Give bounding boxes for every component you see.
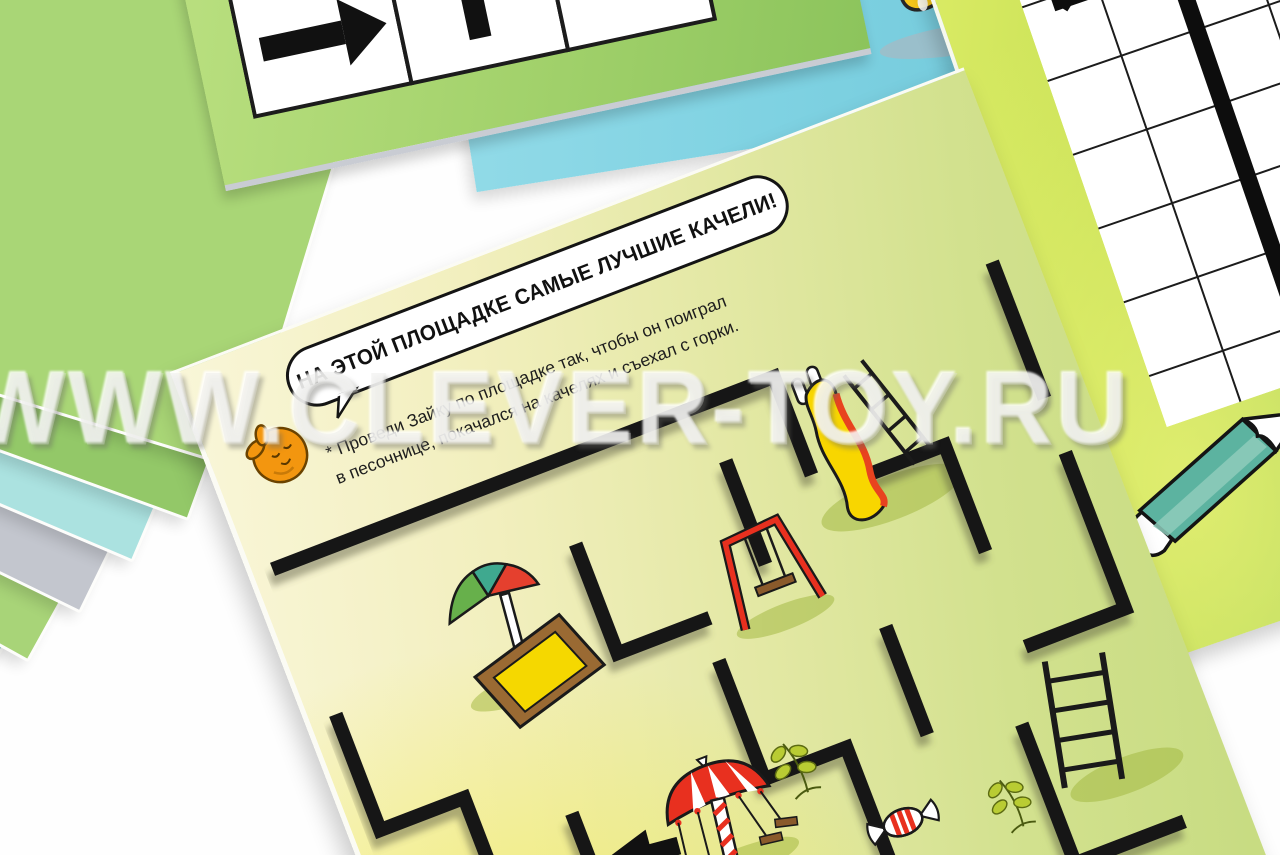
entry-arrow-icon — [588, 822, 685, 855]
bunny-icon — [235, 410, 320, 495]
plant-illustration — [981, 771, 1040, 837]
speech-bubble-tail — [328, 386, 368, 421]
photo-scene: НА ЭТОЙ ПЛОЩАДКЕ САМЫЕ ЛУЧШИЕ КАЧЕЛИ! * … — [0, 0, 1280, 855]
